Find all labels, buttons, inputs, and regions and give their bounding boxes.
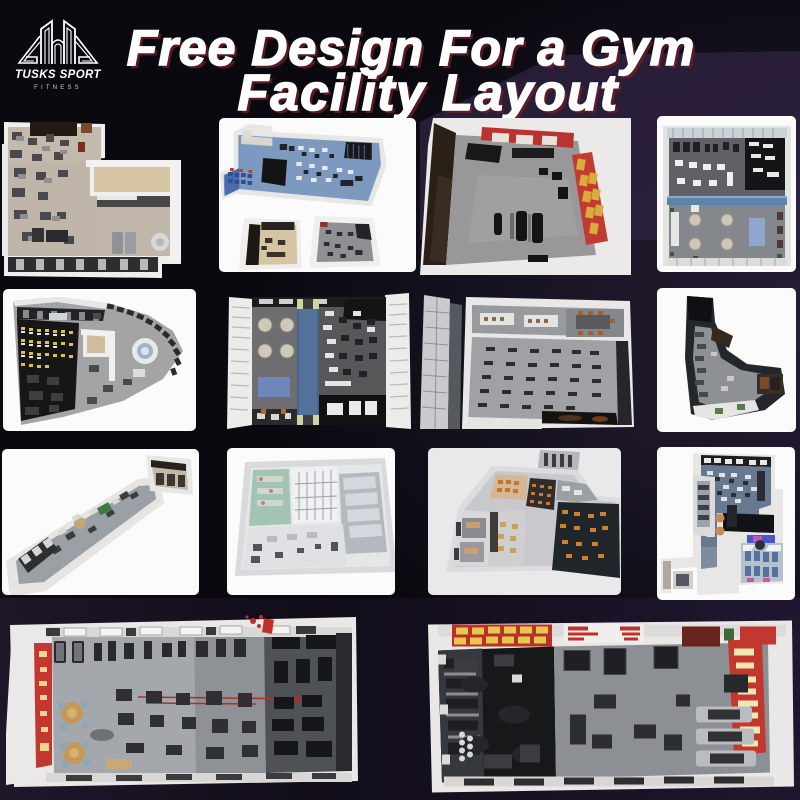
svg-text:TUSKS SPORT: TUSKS SPORT	[15, 69, 102, 81]
svg-text:FITNESS: FITNESS	[34, 85, 82, 91]
